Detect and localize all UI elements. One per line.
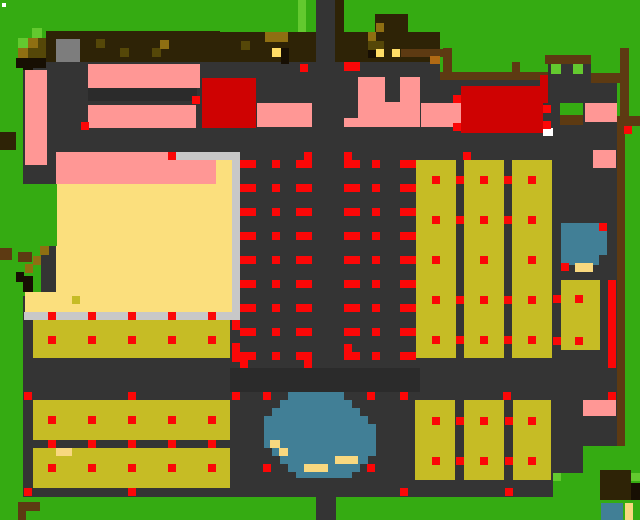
field-col-dots (528, 256, 536, 264)
path-brown-1 (0, 248, 12, 260)
pond-sand-3 (335, 456, 358, 464)
shadow-nw (23, 62, 33, 70)
red-marker (240, 360, 248, 368)
fence-red-cell (624, 126, 632, 134)
red-marker (400, 352, 416, 360)
field-col-dots (480, 336, 488, 344)
canopy-gold (376, 23, 384, 32)
red-marker (240, 232, 256, 240)
fence-elbow (617, 116, 640, 126)
grass-block-west (23, 184, 57, 246)
fence-east (617, 126, 625, 446)
field-border-dots (456, 296, 464, 304)
cursor-dot (2, 3, 6, 7)
gate-window-2 (573, 64, 583, 74)
red-marker (372, 184, 380, 192)
strip-dots (88, 312, 96, 320)
strip-dots (88, 336, 96, 344)
red-marker (400, 328, 416, 336)
red-marker (296, 184, 312, 192)
strip-dots (208, 312, 216, 320)
field-border-dots (504, 176, 512, 184)
bush-gold-1 (28, 38, 38, 48)
red-marker (296, 328, 312, 336)
field-col-dots (480, 296, 488, 304)
strip-dots (208, 416, 216, 424)
red-marker (272, 328, 280, 336)
pond-east-notch (599, 255, 607, 265)
town-map[interactable] (0, 0, 640, 520)
bldg-pink-b (88, 105, 196, 128)
bldg-pink-d-notch (385, 77, 400, 102)
pond-row-6 (264, 440, 376, 448)
red-marker (240, 352, 256, 360)
se-block-dots (528, 457, 536, 465)
bldg-pink-d-foot (344, 118, 358, 127)
tree-glint-6 (368, 32, 376, 41)
pond-sand-1 (270, 440, 280, 448)
bldg-door-white (543, 128, 553, 136)
field-col-1b (415, 400, 455, 480)
red-marker (240, 184, 256, 192)
red-marker (272, 184, 280, 192)
pond-row-4 (264, 416, 368, 424)
se-border-dots (505, 457, 513, 465)
red-marker (400, 392, 408, 400)
red-marker (263, 464, 271, 472)
red-marker (272, 160, 280, 168)
se-block-dots (432, 457, 440, 465)
red-marker (463, 152, 471, 160)
log-west (0, 132, 16, 150)
red-marker (367, 464, 375, 472)
se-block-dots (480, 417, 488, 425)
red-marker (81, 122, 89, 130)
red-marker (372, 232, 380, 240)
red-marker (272, 208, 280, 216)
bldg-pink-f (585, 103, 617, 122)
red-marker (372, 208, 380, 216)
red-marker (453, 95, 461, 103)
field-col-dots (432, 296, 440, 304)
red-marker (296, 232, 312, 240)
red-marker (372, 304, 380, 312)
se-block-dots (528, 417, 536, 425)
red-marker (344, 184, 360, 192)
field-border-dots (504, 336, 512, 344)
strip-dots (168, 336, 176, 344)
bldg-pink-se (583, 400, 616, 416)
red-marker (296, 352, 312, 360)
red-marker (372, 160, 380, 168)
tree-trunk-north (335, 0, 344, 62)
silver-east (232, 152, 240, 320)
red-marker (272, 256, 280, 264)
field-col-dots (432, 336, 440, 344)
tree-shadow-e (368, 50, 376, 58)
strip-dots (88, 440, 96, 448)
red-marker (296, 280, 312, 288)
red-marker (232, 392, 240, 400)
bldg-pink-c (257, 103, 312, 127)
bldg-red-east (461, 86, 543, 133)
red-marker (367, 392, 375, 400)
grass-patch-ne (560, 103, 583, 115)
field-col-3b (513, 400, 551, 480)
fence-post-1 (443, 48, 452, 74)
strip-dots (128, 336, 136, 344)
red-marker (344, 152, 352, 160)
se-border-dots (505, 417, 513, 425)
red-marker (400, 232, 416, 240)
bldg-pink-west (25, 70, 47, 165)
red-marker (272, 232, 280, 240)
field-border-dots (504, 296, 512, 304)
tree-eye-2 (376, 49, 384, 57)
strip-dots (168, 464, 176, 472)
red-col-west-1 (232, 320, 240, 330)
field-border-dots (504, 216, 512, 224)
floor-shade-center (230, 368, 420, 392)
field-cream-sw (25, 292, 56, 312)
path-sw-2 (18, 511, 26, 520)
field-border-dots (456, 176, 464, 184)
strip-dots (48, 336, 56, 344)
red-marker (400, 184, 416, 192)
field-col-dots (480, 176, 488, 184)
gate-roof (545, 55, 591, 64)
bush-dark-1 (38, 38, 46, 48)
field-col-2b (464, 400, 504, 480)
red-marker (344, 280, 360, 288)
se-border-dots (456, 457, 464, 465)
red-marker (296, 208, 312, 216)
fence-post-2 (512, 62, 520, 80)
red-marker (575, 337, 583, 345)
tree-glint-3 (152, 48, 161, 57)
strip-dots (48, 440, 56, 448)
sand-east (575, 263, 593, 272)
strip-dots (168, 416, 176, 424)
red-marker (344, 304, 360, 312)
field-border-dots (456, 216, 464, 224)
field-col-dots (528, 296, 536, 304)
red-marker (561, 263, 569, 271)
red-marker (272, 352, 280, 360)
path-gold-2 (33, 256, 41, 265)
red-marker (453, 123, 461, 131)
red-marker (344, 344, 352, 352)
red-marker (372, 256, 380, 264)
strip-dots (128, 440, 136, 448)
red-marker (400, 208, 416, 216)
red-marker (128, 392, 136, 400)
pond-sand-4 (304, 464, 328, 472)
field-col-dots (528, 216, 536, 224)
road-north (316, 0, 336, 62)
red-marker (296, 304, 312, 312)
red-marker (543, 121, 551, 129)
field-col-dots (528, 336, 536, 344)
red-marker (128, 488, 136, 496)
strip-dots (168, 440, 176, 448)
strip-dots (48, 464, 56, 472)
red-marker (543, 105, 551, 113)
red-marker (24, 392, 32, 400)
field-col-dots (432, 176, 440, 184)
path-brown-2 (18, 252, 32, 262)
red-marker (575, 295, 583, 303)
bldg-pink-a (88, 64, 200, 88)
strip-dots (208, 464, 216, 472)
strip-dots (128, 464, 136, 472)
tree-glint-5 (241, 41, 250, 50)
red-marker (168, 152, 176, 160)
strip-dots (48, 416, 56, 424)
pond-row-10 (296, 472, 352, 478)
stump-orange (430, 56, 440, 64)
red-stripe-east (608, 280, 616, 368)
se-border-dots (456, 417, 464, 425)
sand-strip-c (56, 448, 72, 456)
tree-glint-1 (96, 39, 105, 48)
silver-top (176, 152, 240, 160)
red-marker (505, 488, 513, 496)
strip-dots (208, 336, 216, 344)
stone-block (56, 39, 80, 62)
gate-window-1 (551, 64, 561, 74)
tree-eye-3 (392, 49, 400, 57)
pond-row-3 (272, 408, 360, 416)
path-gold-1 (40, 246, 49, 255)
red-marker (400, 304, 416, 312)
se-block-dots (480, 457, 488, 465)
strip-dots (88, 416, 96, 424)
red-marker (272, 304, 280, 312)
red-marker (300, 64, 308, 72)
red-marker (240, 160, 256, 168)
fence-ne-low (560, 115, 583, 125)
red-marker (503, 392, 511, 400)
red-marker (304, 360, 312, 368)
pond-row-1 (288, 392, 344, 400)
field-border-dots (456, 336, 464, 344)
field-col-dots (528, 176, 536, 184)
red-marker (344, 160, 360, 168)
path-sw-1 (18, 502, 40, 511)
red-marker (263, 392, 271, 400)
red-marker (272, 280, 280, 288)
red-marker (240, 304, 256, 312)
red-marker (344, 256, 360, 264)
se-block-dots (432, 417, 440, 425)
grass-light-se-1 (631, 473, 640, 481)
red-marker (372, 328, 380, 336)
tree-eye-1 (272, 48, 281, 57)
strip-dots (128, 312, 136, 320)
red-marker (240, 328, 256, 336)
tree-gold-bar (265, 32, 288, 42)
red-marker (240, 208, 256, 216)
strip-dots (208, 440, 216, 448)
bush-gold-2 (18, 48, 28, 58)
red-marker (372, 352, 380, 360)
field-col-dots (480, 256, 488, 264)
bush-light-2 (18, 38, 28, 48)
red-marker (344, 328, 360, 336)
tree-se-dark (631, 483, 640, 500)
path-gold-3 (25, 264, 33, 273)
red-marker (240, 256, 256, 264)
sand-se (625, 503, 633, 520)
tree-pupil-1 (281, 48, 289, 64)
red-marker (553, 337, 561, 345)
floor-shade-west (88, 88, 197, 101)
pond-row-2 (280, 400, 352, 408)
red-marker (372, 280, 380, 288)
tree-se (600, 470, 631, 500)
red-marker (192, 96, 200, 104)
tree-glint-4 (160, 40, 169, 49)
red-marker (400, 280, 416, 288)
red-marker (344, 232, 360, 240)
bush-dark-2 (28, 48, 46, 58)
bush-light-1 (32, 28, 42, 38)
fence-north (440, 72, 548, 80)
field-weed (72, 296, 80, 304)
pond-sand-2 (279, 448, 288, 456)
strip-dots (88, 464, 96, 472)
red-marker (344, 208, 360, 216)
field-col-dots (432, 256, 440, 264)
strip-dots (128, 416, 136, 424)
red-marker (240, 280, 256, 288)
field-col-dots (432, 216, 440, 224)
road-south (316, 497, 336, 520)
red-marker (24, 488, 32, 496)
field-col-dots (480, 216, 488, 224)
red-marker (553, 295, 561, 303)
path-dark-2 (23, 276, 33, 292)
grass-light-north (298, 0, 306, 32)
tree-glint-2 (120, 48, 129, 57)
red-marker (304, 152, 312, 160)
tree-row-east (344, 32, 440, 62)
bldg-pink-g (593, 150, 616, 168)
strip-dots (48, 312, 56, 320)
red-marker (400, 256, 416, 264)
red-marker (400, 160, 416, 168)
red-marker (296, 160, 312, 168)
red-marker (344, 352, 360, 360)
marker-top-bar (344, 62, 360, 71)
red-marker (599, 223, 607, 231)
red-marker (296, 256, 312, 264)
bldg-red-west (202, 78, 256, 128)
pond-row-5 (264, 424, 376, 440)
red-marker (232, 352, 240, 360)
red-marker (400, 488, 408, 496)
fence-post-east (620, 48, 629, 116)
strip-dots (168, 312, 176, 320)
pond-se (601, 503, 623, 520)
red-marker (608, 392, 616, 400)
grass-light-se-2 (553, 473, 561, 481)
